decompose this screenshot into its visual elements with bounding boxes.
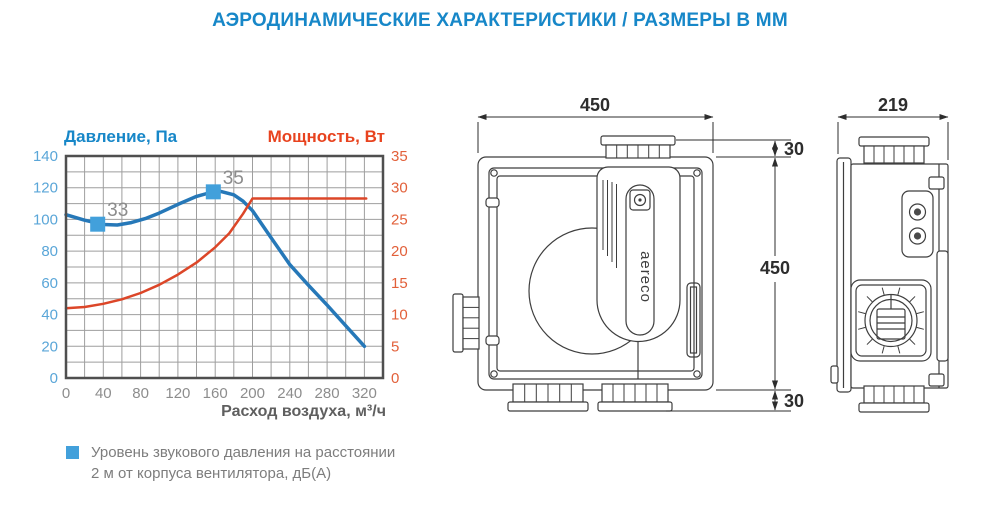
x-axis-tick: 320 <box>352 385 377 402</box>
left-axis-tick: 120 <box>33 180 58 197</box>
left-axis-title: Давление, Па <box>64 127 178 146</box>
dim-front-height-label: 450 <box>760 258 790 278</box>
left-axis-tick: 0 <box>50 370 58 387</box>
knob-panel <box>902 191 933 257</box>
x-axis-tick: 200 <box>240 385 265 402</box>
x-axis-tick: 240 <box>277 385 302 402</box>
right-axis-tick: 20 <box>391 243 408 260</box>
top-spigot <box>601 136 675 158</box>
right-axis-title: Мощность, Вт <box>268 127 385 146</box>
side-grille <box>851 280 931 361</box>
left-axis-tick: 100 <box>33 211 58 228</box>
left-axis-tick: 140 <box>33 148 58 165</box>
page: АЭРОДИНАМИЧЕСКИЕ ХАРАКТЕРИСТИКИ / РАЗМЕР… <box>0 0 1000 510</box>
legend-marker-swatch <box>66 446 79 459</box>
legend-line-2: 2 м от корпуса вентилятора, дБ(А) <box>91 463 395 484</box>
side-top-spigot <box>859 137 929 163</box>
right-axis-tick: 10 <box>391 307 408 324</box>
left-spigot <box>453 294 479 352</box>
chart-legend: Уровень звукового давления на расстоянии… <box>66 442 395 484</box>
aereco-logo-text: aereco <box>637 251 654 303</box>
right-axis-tick: 15 <box>391 275 408 292</box>
x-axis-tick: 0 <box>62 385 70 402</box>
bottom-spigot-left <box>508 384 588 411</box>
dim-front-width <box>478 117 713 153</box>
right-axis-tick: 25 <box>391 211 408 228</box>
left-axis-tick: 60 <box>41 275 58 292</box>
chart-grid <box>66 156 383 378</box>
right-axis-tick: 5 <box>391 338 399 355</box>
side-tab <box>831 366 838 383</box>
sound-level-marker <box>90 217 105 232</box>
legend-text: Уровень звукового давления на расстоянии… <box>91 442 395 484</box>
x-axis-tick: 280 <box>315 385 340 402</box>
sound-level-value: 35 <box>223 168 244 189</box>
left-axis-tick: 40 <box>41 307 58 324</box>
fan-side-view-drawing: 219 <box>831 95 948 412</box>
chart-markers: 3335 <box>90 168 244 232</box>
side-clip <box>486 198 499 207</box>
right-axis-tick: 0 <box>391 370 399 387</box>
fan-front-view-drawing: 450 <box>453 95 804 411</box>
legend-line-1: Уровень звукового давления на расстоянии <box>91 442 395 463</box>
dim-top-offset-label: 30 <box>784 139 804 159</box>
scene-svg: 3335 02040608010012014005101520253035040… <box>0 0 1000 510</box>
right-axis-tick: 30 <box>391 180 408 197</box>
right-axis-tick: 35 <box>391 148 408 165</box>
aerodynamic-chart: 3335 02040608010012014005101520253035040… <box>33 127 408 420</box>
sound-level-marker <box>206 184 221 199</box>
side-rail <box>937 251 948 361</box>
dim-bottom-offset-label: 30 <box>784 391 804 411</box>
x-axis-tick: 40 <box>95 385 112 402</box>
left-axis-tick: 20 <box>41 338 58 355</box>
sound-level-value: 33 <box>107 200 128 221</box>
left-axis-tick: 80 <box>41 243 58 260</box>
x-axis-tick: 80 <box>132 385 149 402</box>
dim-side-depth-label: 219 <box>878 95 908 115</box>
x-axis-tick: 120 <box>165 385 190 402</box>
bottom-spigot-right <box>598 384 672 411</box>
side-clip <box>929 374 944 386</box>
side-clip <box>929 177 944 189</box>
x-axis-tick: 160 <box>203 385 228 402</box>
dim-front-width-label: 450 <box>580 95 610 115</box>
grid-lines <box>66 156 383 378</box>
side-bottom-spigot <box>859 386 929 412</box>
side-clip <box>486 336 499 345</box>
x-axis-title: Расход воздуха, м³/ч <box>221 403 386 420</box>
